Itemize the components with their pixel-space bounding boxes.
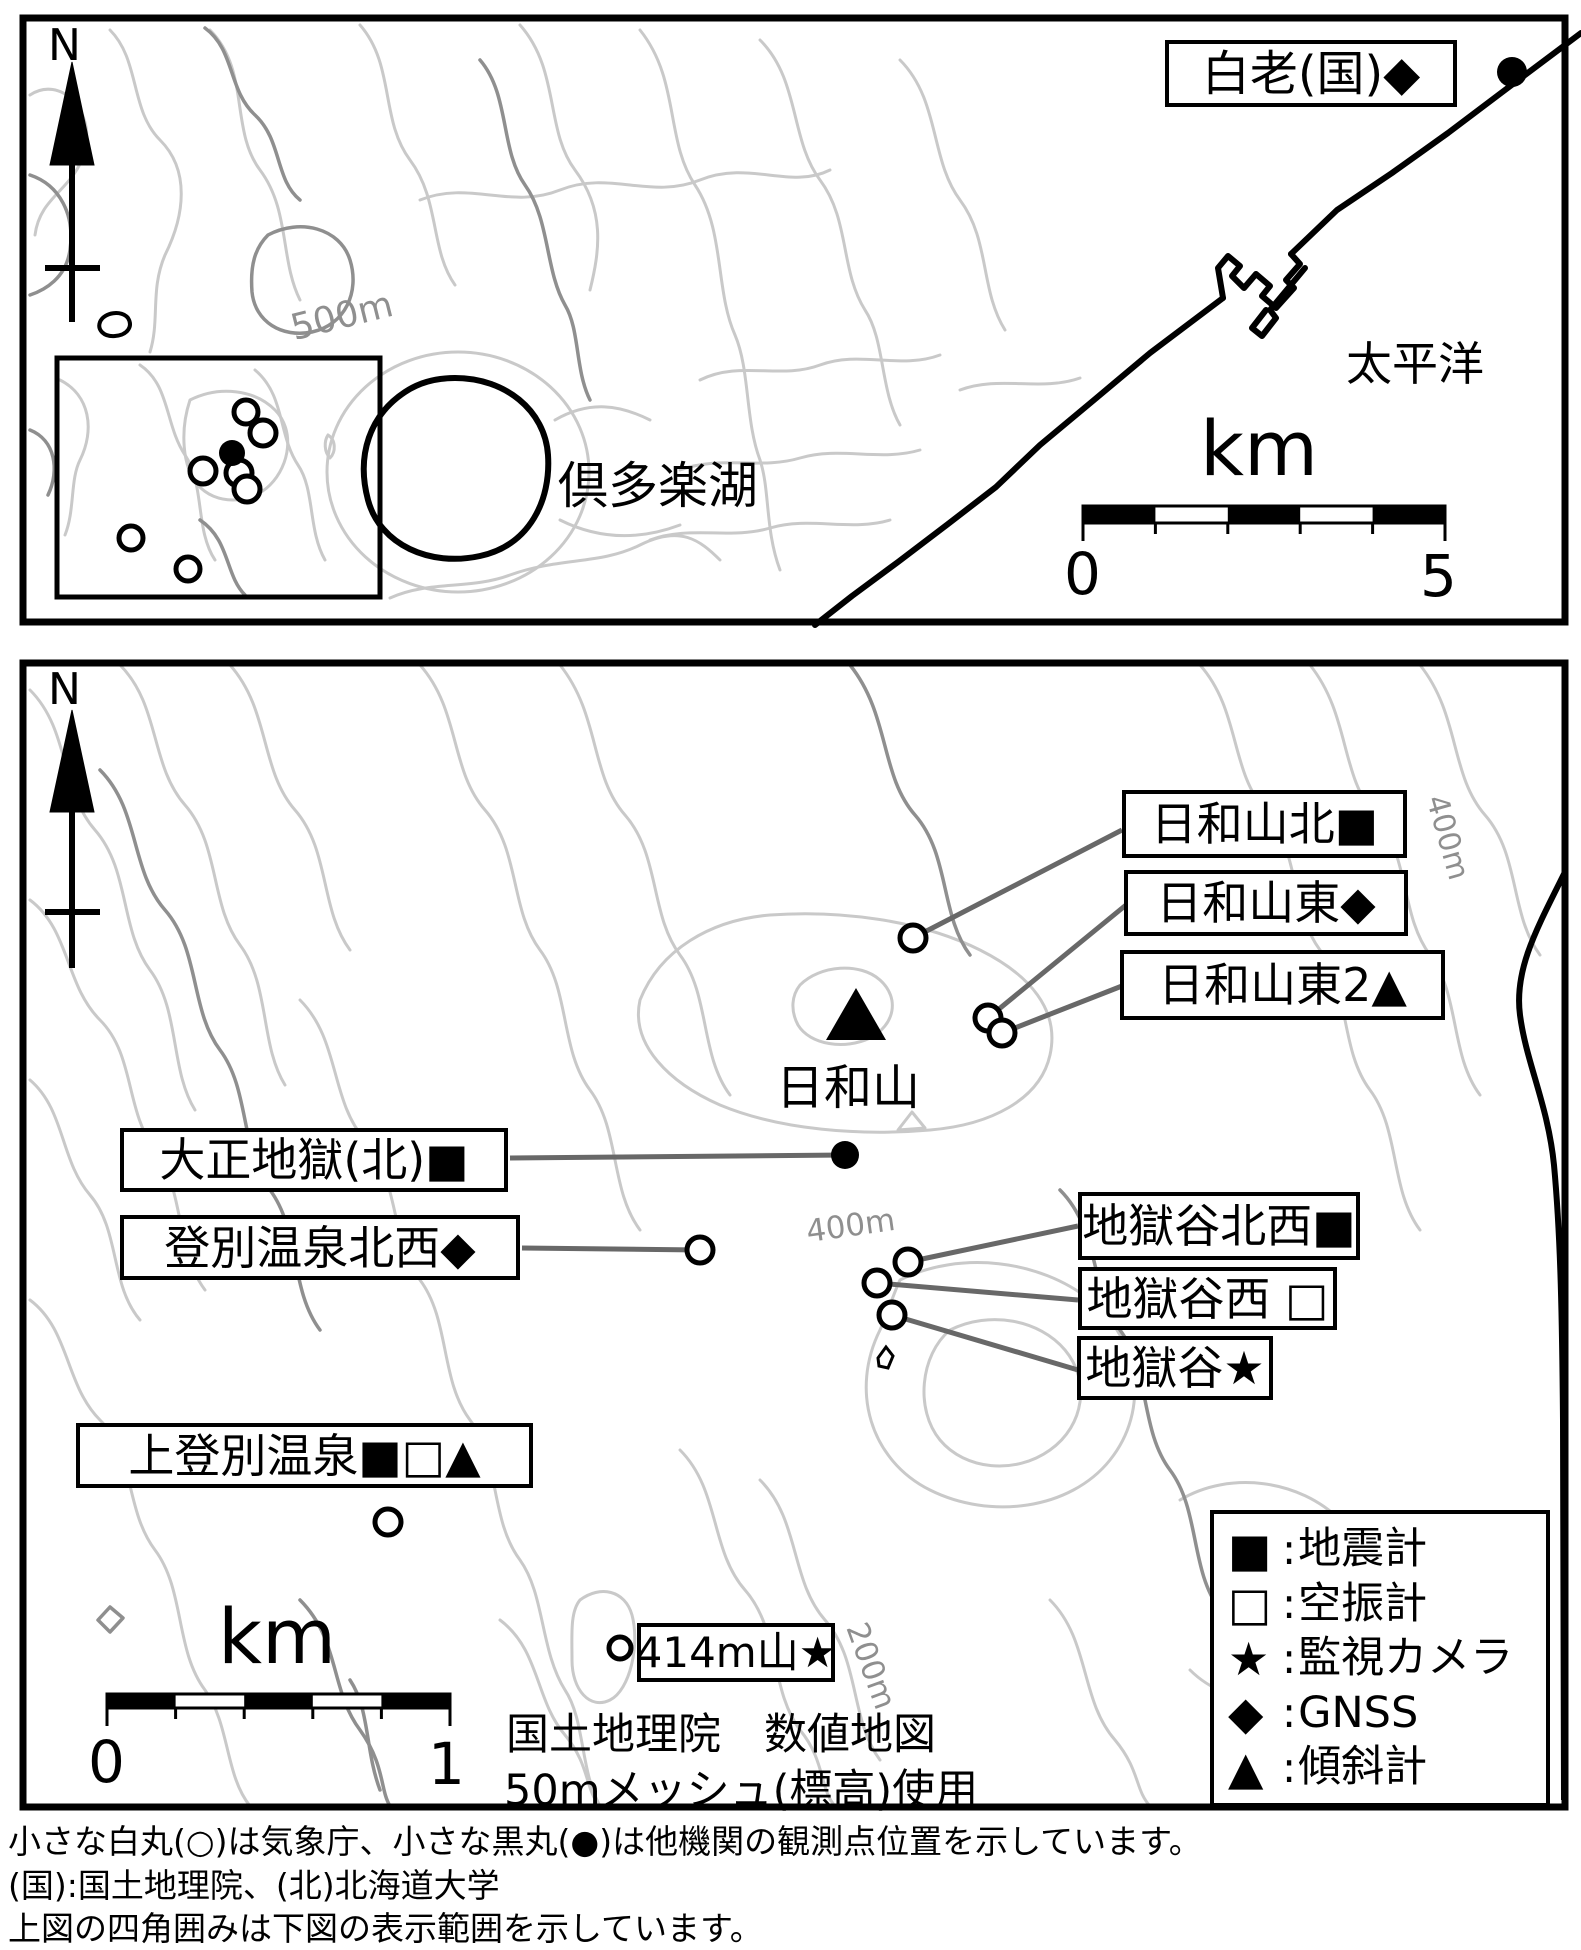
scale-bar-overview xyxy=(1083,506,1445,541)
station-label-jigokudani-w: 地獄谷西 □ xyxy=(1078,1267,1337,1330)
station-circle-hiyoriyama-kita xyxy=(900,925,926,951)
station-circle-jigokudani xyxy=(879,1302,905,1328)
scale-start-detail: 0 xyxy=(88,1728,125,1796)
north-label-overview: N xyxy=(48,20,81,71)
detail-station-markers xyxy=(375,925,1015,1659)
station-label-hiyoriyama-higashi2: 日和山東2▲ xyxy=(1120,950,1445,1020)
scale-unit-detail: km xyxy=(218,1592,336,1681)
legend-separator: : xyxy=(1282,1692,1296,1734)
legend-label: 空振計 xyxy=(1298,1583,1427,1626)
scale-unit-overview: km xyxy=(1200,404,1318,493)
leader-jigokudani xyxy=(892,1315,1078,1370)
station-circle-noboribetsu-nw xyxy=(687,1237,713,1263)
leader-jigokudani-w xyxy=(877,1283,1078,1300)
hiyoriyama-summit-label: 日和山 xyxy=(776,1048,920,1118)
station-label-jigokudani-nw: 地獄谷北西■ xyxy=(1078,1192,1360,1260)
legend-label: GNSS xyxy=(1298,1692,1418,1735)
legend: ■:地震計 □:空振計 ★:監視カメラ ◆:GNSS ▲:傾斜計 xyxy=(1210,1510,1550,1807)
legend-row-seismometer: ■:地震計 xyxy=(1228,1527,1546,1573)
station-label-shiraoi: 白老(国)◆ xyxy=(1165,40,1457,107)
footnote-line3: 上図の四角囲みは下図の表示範囲を示しています。 xyxy=(8,1907,1202,1950)
legend-separator: : xyxy=(1282,1638,1296,1680)
station-label-jigokudani: 地獄谷★ xyxy=(1077,1336,1273,1400)
scale-start-overview: 0 xyxy=(1064,540,1101,608)
overview-contours-light xyxy=(30,25,1080,598)
footnote-line2: (国):国土地理院、(北)北海道大学 xyxy=(8,1864,1202,1908)
legend-label: 傾斜計 xyxy=(1298,1746,1427,1789)
footnotes: 小さな白丸(○)は気象庁、小さな黒丸(●)は他機関の観測点位置を示しています。 … xyxy=(8,1820,1202,1950)
station-label-text: 日和山北■ xyxy=(1151,801,1378,847)
scale-bar-detail xyxy=(107,1694,450,1726)
station-label-text: 登別温泉北西◆ xyxy=(164,1225,475,1271)
station-label-hiyoriyama-higashi: 日和山東◆ xyxy=(1124,870,1408,936)
station-circle-hiyoriyama-higashi2 xyxy=(989,1020,1015,1046)
hiyoriyama-summit-triangle xyxy=(826,988,886,1040)
legend-row-gnss: ◆:GNSS xyxy=(1228,1690,1546,1736)
jma-station-circle xyxy=(234,476,260,502)
legend-row-tiltmeter: ▲:傾斜計 xyxy=(1228,1745,1546,1791)
station-circle-jigokudani-w xyxy=(864,1270,890,1296)
station-label-hiyoriyama-kita: 日和山北■ xyxy=(1122,790,1407,858)
leader-hiyoriyama-higashi xyxy=(988,905,1126,1018)
station-label-text: 日和山東2▲ xyxy=(1158,962,1407,1008)
leader-jigokudani-nw xyxy=(908,1226,1078,1262)
kuttara-lake-outline xyxy=(364,378,548,559)
inset-extent-box xyxy=(57,358,380,597)
station-circle-kami-noboribetsu xyxy=(375,1509,401,1535)
other-agency-station-dot xyxy=(219,440,245,466)
leader-taisho-jigoku xyxy=(510,1155,845,1158)
jma-station-circle xyxy=(250,420,276,446)
station-label-414m-yama: 414m山★ xyxy=(637,1623,835,1682)
tiltmeter-symbol-icon: ▲ xyxy=(1228,1745,1282,1791)
small-contour-ring xyxy=(99,313,130,336)
north-label-detail: N xyxy=(48,664,81,715)
footnote-line1: 小さな白丸(○)は気象庁、小さな黒丸(●)は他機関の観測点位置を示しています。 xyxy=(8,1820,1202,1864)
camera-symbol-icon: ★ xyxy=(1228,1636,1282,1682)
legend-row-camera: ★:監視カメラ xyxy=(1228,1636,1546,1682)
legend-separator: : xyxy=(1282,1583,1296,1625)
station-label-text: 上登別温泉■□▲ xyxy=(128,1433,480,1479)
jma-station-circle xyxy=(176,557,200,581)
legend-label: 監視カメラ xyxy=(1298,1637,1513,1680)
station-label-text: 414m山★ xyxy=(636,1632,837,1674)
map-source-line1: 国土地理院 数値地図 xyxy=(506,1700,936,1762)
infrasound-symbol-icon: □ xyxy=(1228,1581,1282,1627)
jma-station-circle xyxy=(119,526,143,550)
legend-separator: : xyxy=(1282,1747,1296,1789)
jma-station-circle xyxy=(190,458,216,484)
station-label-text: 日和山東◆ xyxy=(1156,880,1375,926)
station-label-text: 大正地獄(北)■ xyxy=(159,1137,468,1183)
station-dot-taisho-jigoku xyxy=(831,1141,859,1169)
leader-noboribetsu-nw xyxy=(522,1248,700,1250)
station-circle-414m-yama xyxy=(609,1637,631,1659)
kuttara-lake-label: 倶多楽湖 xyxy=(558,446,758,518)
seismometer-symbol-icon: ■ xyxy=(1228,1527,1282,1573)
pacific-ocean-label: 太平洋 xyxy=(1346,328,1484,394)
station-label-shiraoi-text: 白老(国)◆ xyxy=(1202,50,1420,98)
scale-end-overview: 5 xyxy=(1420,542,1457,610)
shiraoi-station-dot xyxy=(1497,57,1527,87)
gnss-symbol-icon: ◆ xyxy=(1228,1690,1282,1736)
station-label-taisho-jigoku: 大正地獄(北)■ xyxy=(120,1128,508,1192)
station-label-text: 地獄谷★ xyxy=(1085,1345,1264,1391)
station-label-kami-noboribetsu-onsen: 上登別温泉■□▲ xyxy=(76,1423,533,1488)
station-label-text: 地獄谷西 □ xyxy=(1086,1276,1328,1322)
scale-end-detail: 1 xyxy=(428,1730,465,1798)
small-contour-pentagon xyxy=(878,1347,893,1368)
station-circle-jigokudani-nw xyxy=(895,1249,921,1275)
figure: N 500m 倶多楽湖 太平洋 白老(国)◆ km 0 5 N 日和山 400m… xyxy=(0,0,1581,1950)
legend-separator: : xyxy=(1282,1529,1296,1571)
station-label-text: 地獄谷北西■ xyxy=(1082,1203,1355,1249)
map-source-line2: 50mメッシュ(標高)使用 xyxy=(504,1756,978,1818)
station-label-noboribetsu-onsen-nw: 登別温泉北西◆ xyxy=(120,1215,520,1280)
legend-row-infrasound: □:空振計 xyxy=(1228,1581,1546,1627)
legend-label: 地震計 xyxy=(1298,1528,1427,1571)
